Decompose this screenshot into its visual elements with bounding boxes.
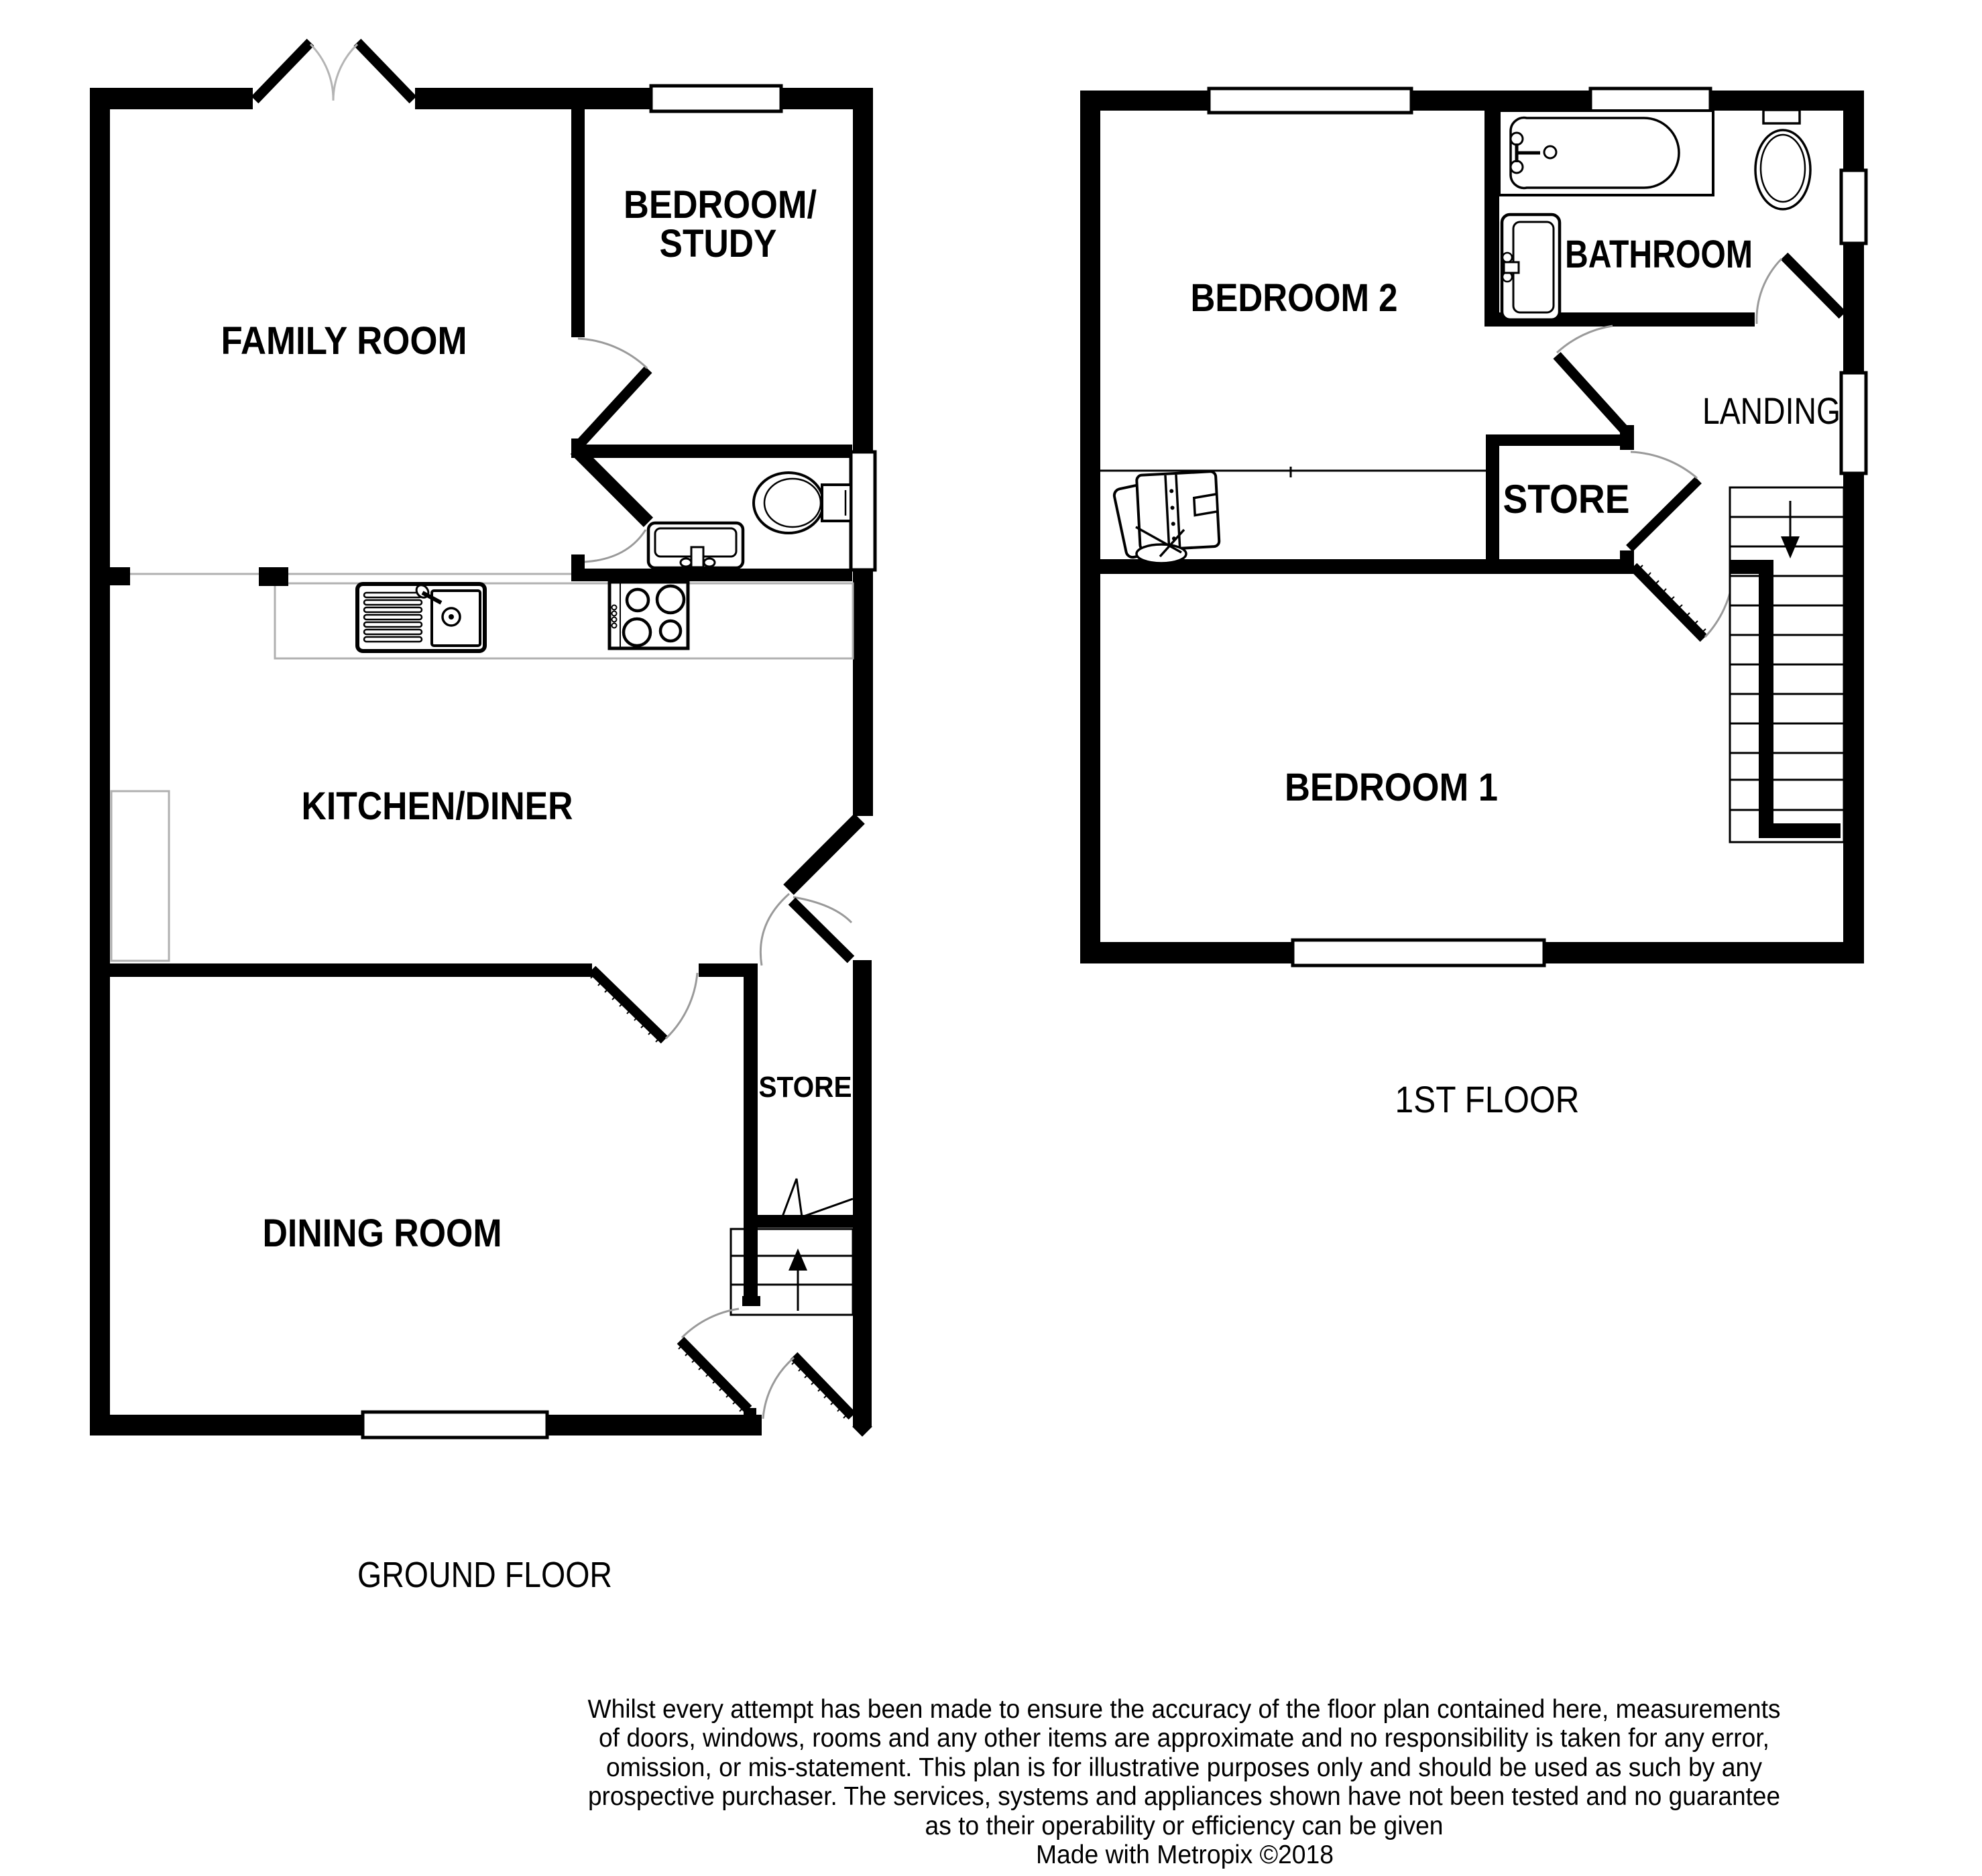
svg-text:of doors, windows, rooms and a: of doors, windows, rooms and any other i…: [599, 1724, 1769, 1753]
svg-text:Whilst every attempt has been: Whilst every attempt has been made to en…: [588, 1695, 1781, 1724]
svg-text:1ST FLOOR: 1ST FLOOR: [1395, 1078, 1580, 1120]
svg-text:GROUND FLOOR: GROUND FLOOR: [357, 1555, 612, 1595]
svg-text:DINING ROOM: DINING ROOM: [263, 1212, 502, 1255]
svg-text:omission, or mis-statement. Th: omission, or mis-statement. This plan is…: [606, 1753, 1762, 1782]
svg-text:STORE: STORE: [759, 1071, 852, 1104]
svg-text:STUDY: STUDY: [660, 222, 777, 266]
svg-text:Made with Metropix ©2018: Made with Metropix ©2018: [1036, 1840, 1334, 1869]
svg-text:prospective purchaser. The ser: prospective purchaser. The services, sys…: [588, 1782, 1780, 1811]
svg-text:LANDING: LANDING: [1702, 390, 1841, 432]
svg-text:BEDROOM 1: BEDROOM 1: [1285, 766, 1498, 809]
svg-text:BEDROOM/: BEDROOM/: [624, 183, 817, 227]
svg-text:STORE: STORE: [1503, 477, 1630, 522]
svg-text:FAMILY ROOM: FAMILY ROOM: [221, 319, 467, 363]
svg-text:BATHROOM: BATHROOM: [1565, 233, 1753, 276]
svg-text:as to their operability or eff: as to their operability or efficiency ca…: [925, 1812, 1444, 1840]
svg-text:KITCHEN/DINER: KITCHEN/DINER: [302, 784, 573, 828]
svg-text:BEDROOM 2: BEDROOM 2: [1191, 276, 1398, 320]
